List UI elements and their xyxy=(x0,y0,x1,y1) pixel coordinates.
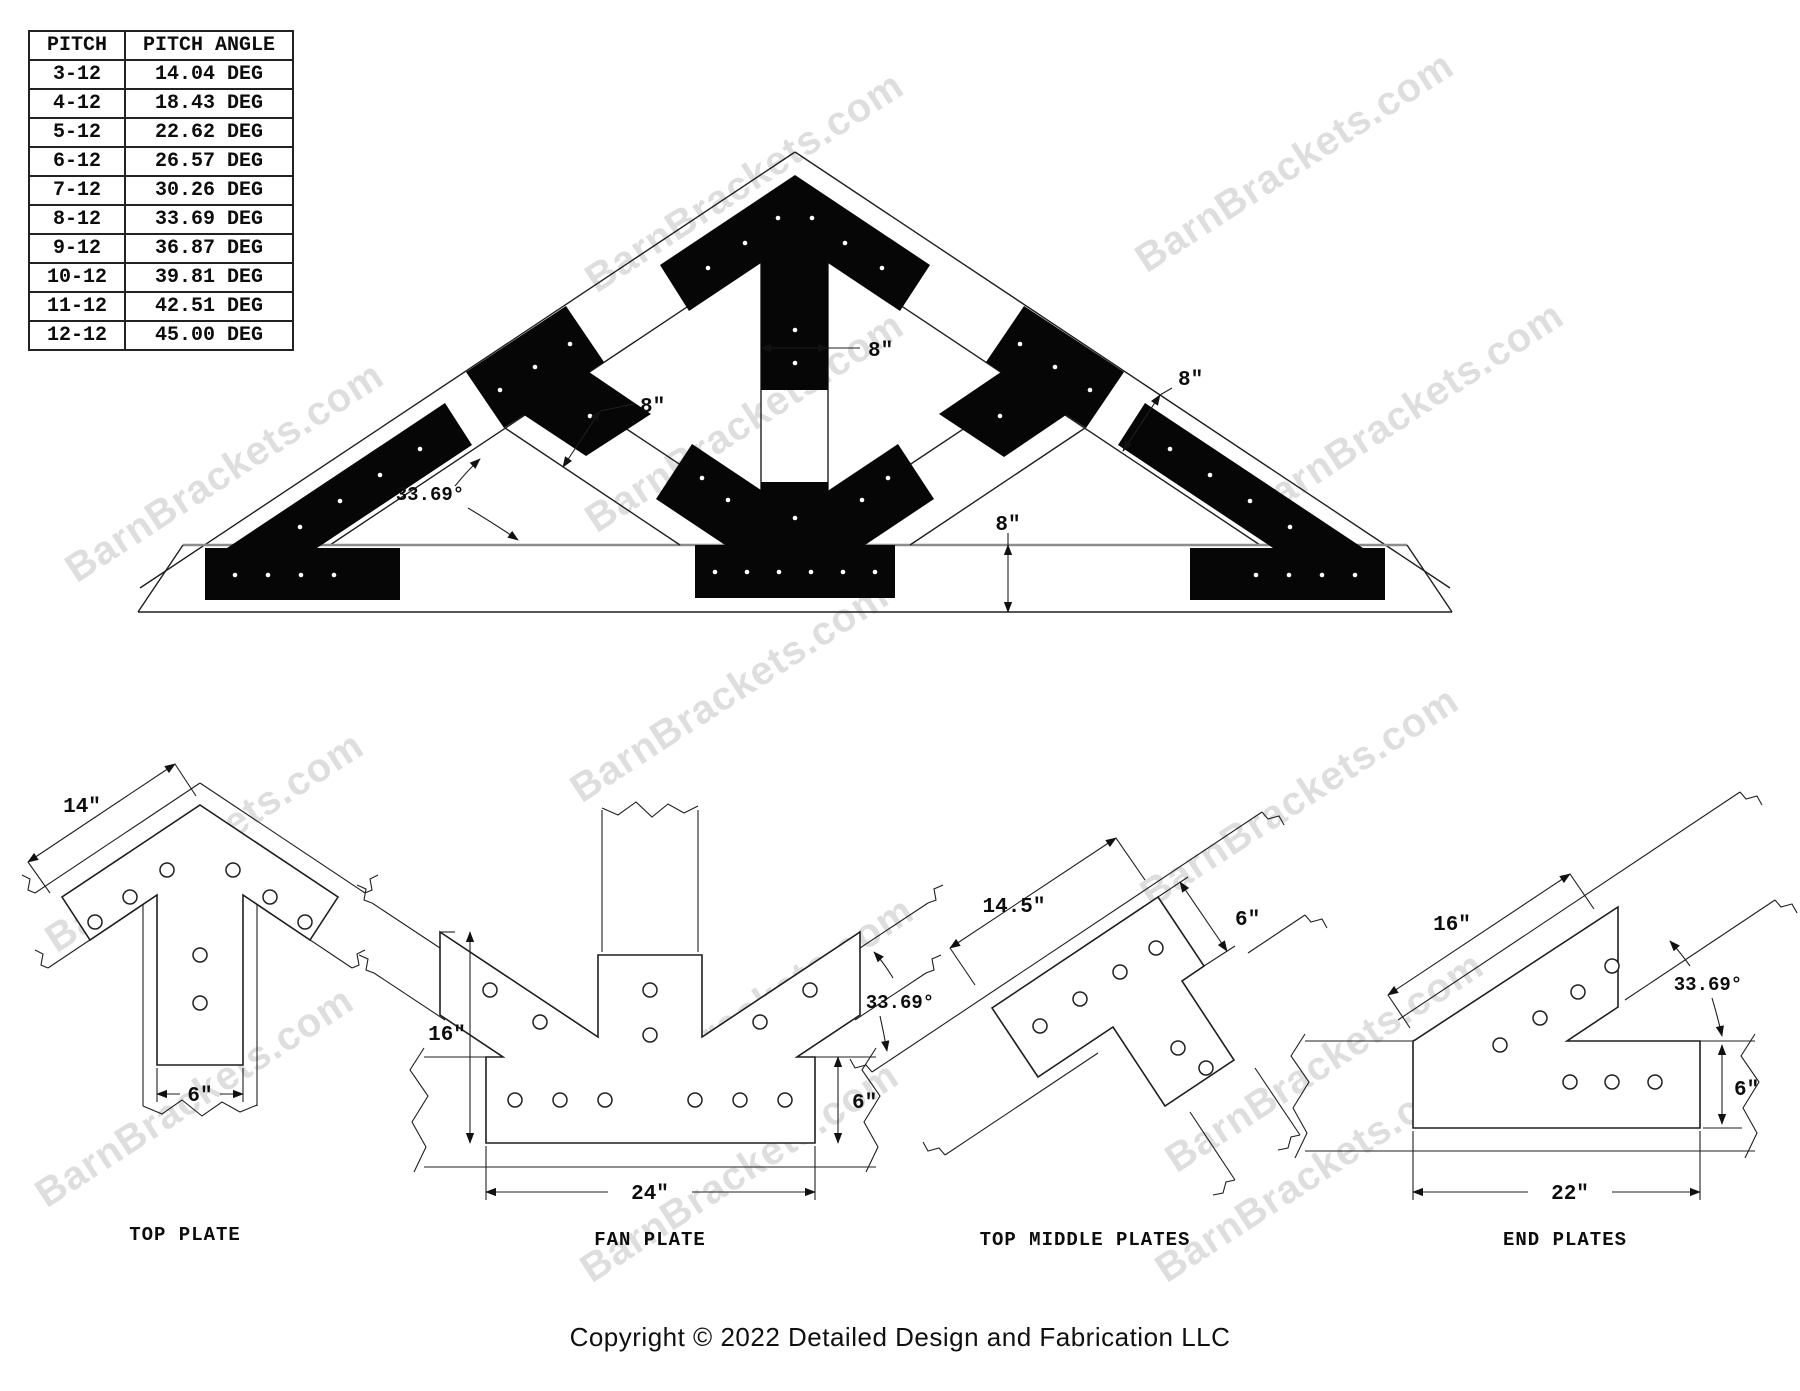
top-plate-outline xyxy=(62,805,338,1065)
strut-width-label: 8" xyxy=(640,396,665,419)
copyright-text: Copyright © 2022 Detailed Design and Fab… xyxy=(0,1322,1800,1353)
detail-end-plates: 16" 33.69° 6" 22" END PLATES xyxy=(1291,792,1797,1251)
top-plate-leg-dim: 6" xyxy=(187,1085,212,1108)
rafter-width-label: 8" xyxy=(1178,369,1203,392)
top-plate-width-dim: 14" xyxy=(63,796,101,819)
detail-top-plate: 14" 6" TOP PLATE xyxy=(22,764,378,1246)
detail-top-middle-plates: 14.5" 6" TOP MIDDLE PLATES xyxy=(850,812,1327,1251)
end-plate-base-dim: 22" xyxy=(1551,1183,1589,1206)
fan-plate-angle-label: 33.69° xyxy=(866,992,934,1014)
end-plate-width-dim: 6" xyxy=(1734,1079,1759,1102)
end-plates-caption: END PLATES xyxy=(1503,1229,1627,1251)
top-middle-caption: TOP MIDDLE PLATES xyxy=(980,1229,1191,1251)
top-middle-plate-outline xyxy=(992,897,1234,1106)
truss-diagram: 8" 8" 8" 8" 33.69° xyxy=(138,152,1452,612)
fan-plate-height-dim: 16" xyxy=(428,1024,466,1047)
pitch-angle-label: 33.69° xyxy=(396,484,464,506)
top-plate-caption: TOP PLATE xyxy=(129,1224,241,1246)
end-plate-outline xyxy=(1413,907,1700,1128)
fan-plate-width-dim: 24" xyxy=(631,1183,669,1206)
top-middle-width-dim: 6" xyxy=(1235,909,1260,932)
drawing-canvas: 8" 8" 8" 8" 33.69° xyxy=(0,0,1800,1391)
detail-fan-plate: 16" 24" 6" 33.69° FAN PLATE xyxy=(357,802,943,1251)
left-top-middle-bracket xyxy=(466,306,651,456)
fan-plate-thick-dim: 6" xyxy=(852,1092,877,1115)
top-middle-length-dim: 14.5" xyxy=(982,896,1045,919)
fan-plate-caption: FAN PLATE xyxy=(594,1229,706,1251)
truss-brackets xyxy=(205,175,1385,600)
right-top-middle-bracket xyxy=(939,306,1124,457)
chord-depth-label: 8" xyxy=(995,514,1020,537)
end-plate-angle-label: 33.69° xyxy=(1674,974,1742,996)
kingpost-width-label: 8" xyxy=(868,340,893,363)
fan-bracket xyxy=(656,444,934,598)
end-plate-length-dim: 16" xyxy=(1433,914,1471,937)
